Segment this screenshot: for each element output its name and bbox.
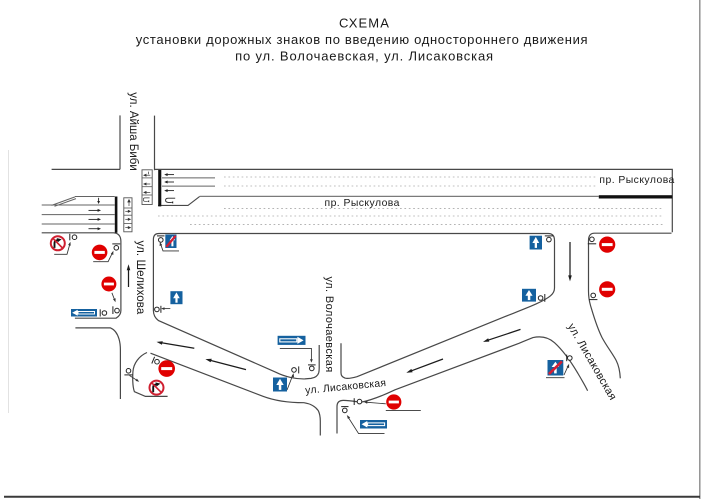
svg-text:ул. Волочаевская: ул. Волочаевская (323, 277, 335, 373)
svg-text:ул. Айша Биби: ул. Айша Биби (127, 92, 139, 171)
svg-text:установки дорожных знаков по в: установки дорожных знаков по введению од… (136, 32, 589, 47)
svg-text:пр. Рыскулова: пр. Рыскулова (325, 198, 400, 209)
svg-text:ул. Лисаковская: ул. Лисаковская (565, 322, 619, 403)
svg-text:пр. Рыскулова: пр. Рыскулова (599, 175, 674, 186)
svg-text:ул. Шелихова: ул. Шелихова (134, 241, 146, 315)
svg-text:ул. Лисаковская: ул. Лисаковская (305, 378, 387, 397)
svg-text:по ул. Волочаевская, ул. Лисак: по ул. Волочаевская, ул. Лисаковская (235, 48, 494, 63)
svg-text:СХЕМА: СХЕМА (339, 16, 390, 31)
